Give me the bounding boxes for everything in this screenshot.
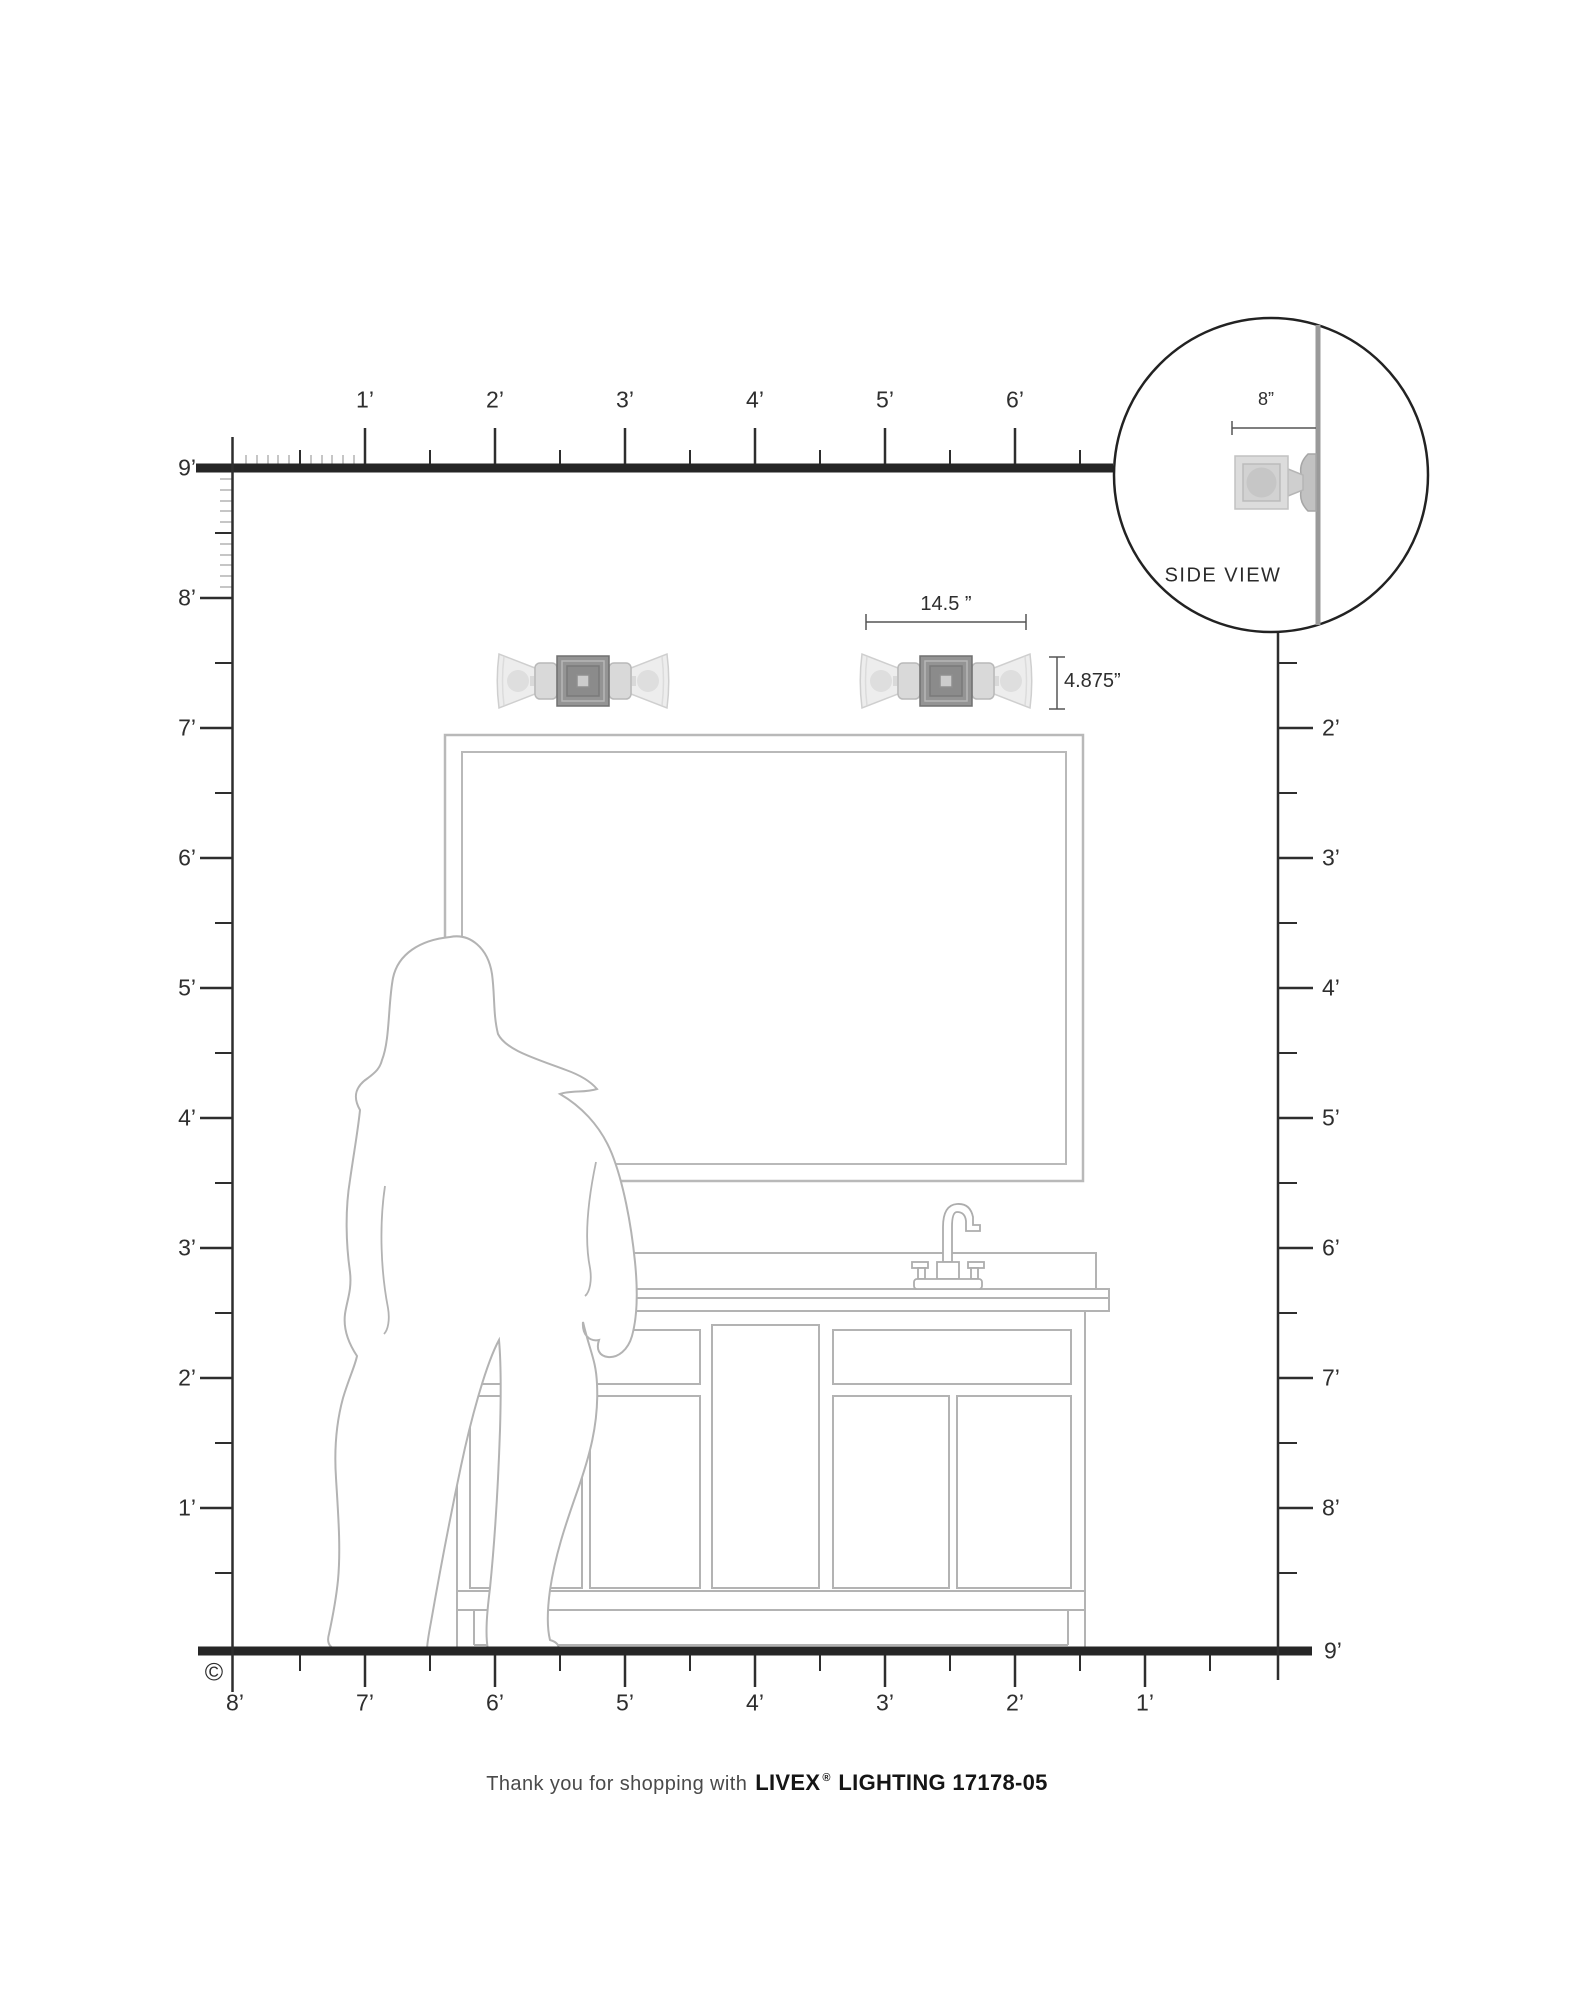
bottom-ruler-ticks [300,1651,1210,1687]
top-ruler-label-5ft: 5’ [876,389,894,412]
left-ruler-ticks [200,533,232,1573]
inset-fixture [1235,454,1316,511]
fixture-width-dimension-label: 14.5 ” [920,594,971,614]
height-dimension [1049,657,1065,709]
copyright-symbol: © [205,1659,223,1688]
right-ruler-label-8ft: 8’ [1322,1497,1340,1520]
top-ruler-ticks [300,428,1080,468]
bottom-ruler-label-5ft: 5’ [616,1692,634,1715]
left-ruler-label-5ft: 5’ [178,977,196,1000]
top-ruler-label-2ft: 2’ [486,389,504,412]
right-ruler-ticks [1278,663,1313,1573]
sconce-right [860,654,1032,708]
top-ruler-label-3ft: 3’ [616,389,634,412]
bottom-ruler-label-8ft: 8’ [226,1692,244,1715]
bottom-ruler-label-7ft: 7’ [356,1692,374,1715]
fixture-extension-dimension-label: 8” [1258,390,1274,408]
right-ruler-label-5ft: 5’ [1322,1107,1340,1130]
footer-brand-text: LIVEX [755,1770,820,1796]
top-ruler-label-6ft: 6’ [1006,389,1024,412]
top-ruler-label-4ft: 4’ [746,389,764,412]
left-ruler-label-4ft: 4’ [178,1107,196,1130]
right-ruler-label-2ft: 2’ [1322,717,1340,740]
faucet-right [912,1204,984,1289]
left-ruler-label-8ft: 8’ [178,587,196,610]
side-view-caption: SIDE VIEW [1165,565,1282,588]
right-ruler-label-9ft: 9’ [1324,1640,1342,1663]
right-ruler-label-3ft: 3’ [1322,847,1340,870]
right-ruler-label-7ft: 7’ [1322,1367,1340,1390]
left-ruler-label-9ft: 9’ [178,457,196,480]
door-left-2 [590,1396,700,1588]
footer-caption: Thank you for shopping with LIVEX ® LIGH… [486,1770,1047,1796]
top-ruler-label-1ft: 1’ [356,389,374,412]
door-right-1 [833,1396,949,1588]
right-ruler-label-6ft: 6’ [1322,1237,1340,1260]
registered-trademark-symbol: ® [822,1772,830,1784]
left-ruler-label-3ft: 3’ [178,1237,196,1260]
bottom-ruler-label-1ft: 1’ [1136,1692,1154,1715]
bottom-ruler-label-2ft: 2’ [1006,1692,1024,1715]
product-dimension-diagram: 1’ 2’ 3’ 4’ 5’ 6’ 9’ 8’ 7’ 6’ 5’ 4’ 3’ 2… [0,0,1588,2000]
door-right-2 [957,1396,1071,1588]
sconce-left [497,654,669,708]
center-panel [712,1325,819,1588]
bottom-ruler-label-3ft: 3’ [876,1692,894,1715]
footer-thanks-text: Thank you for shopping with [486,1773,747,1796]
bottom-ruler-label-4ft: 4’ [746,1692,764,1715]
bottom-ruler-label-6ft: 6’ [486,1692,504,1715]
left-ruler-label-2ft: 2’ [178,1367,196,1390]
footer-product-number: LIGHTING 17178-05 [838,1770,1047,1796]
right-ruler-label-4ft: 4’ [1322,977,1340,1000]
left-ruler-label-1ft: 1’ [178,1497,196,1520]
width-dimension [866,614,1026,630]
left-ruler-label-7ft: 7’ [178,717,196,740]
drawer-right [833,1330,1071,1384]
left-ruler-label-6ft: 6’ [178,847,196,870]
fixture-height-dimension-label: 4.875” [1064,671,1121,691]
